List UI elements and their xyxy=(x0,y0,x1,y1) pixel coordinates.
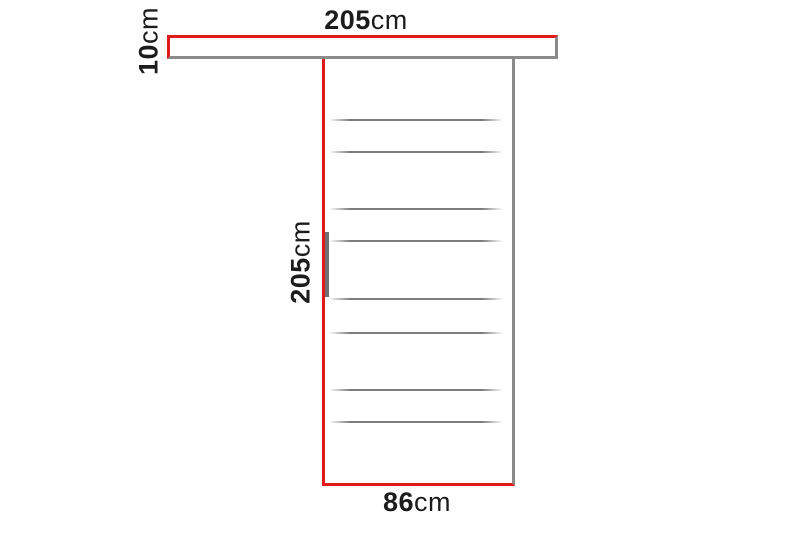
door-width-value: 86 xyxy=(383,487,414,517)
rail-height-label: 10cm xyxy=(136,7,163,75)
door-slat-line xyxy=(329,298,503,300)
rail-width-value: 205 xyxy=(324,5,371,35)
door-width-unit: cm xyxy=(414,487,451,517)
door-slat-line xyxy=(329,240,503,242)
dimension-diagram: 205cm 10cm 205cm 86cm xyxy=(0,0,800,533)
door-slat-line xyxy=(329,389,503,391)
door-slat-line xyxy=(329,421,503,423)
rail-height-unit: cm xyxy=(134,7,164,44)
door-height-unit: cm xyxy=(286,220,316,257)
door-width-label: 86cm xyxy=(383,489,451,516)
door-slat-line xyxy=(329,119,503,121)
rail-width-label: 205cm xyxy=(324,7,408,34)
door-slat-line xyxy=(329,151,503,153)
door-height-value: 205 xyxy=(286,257,316,304)
door-panel-outline xyxy=(322,59,515,486)
rail-width-unit: cm xyxy=(371,5,408,35)
rail-height-value: 10 xyxy=(134,44,164,75)
top-rail-outline xyxy=(167,35,558,59)
door-slat-line xyxy=(329,332,503,334)
door-slat-line xyxy=(329,208,503,210)
door-handle-bar xyxy=(325,232,329,297)
door-height-label: 205cm xyxy=(288,220,315,304)
